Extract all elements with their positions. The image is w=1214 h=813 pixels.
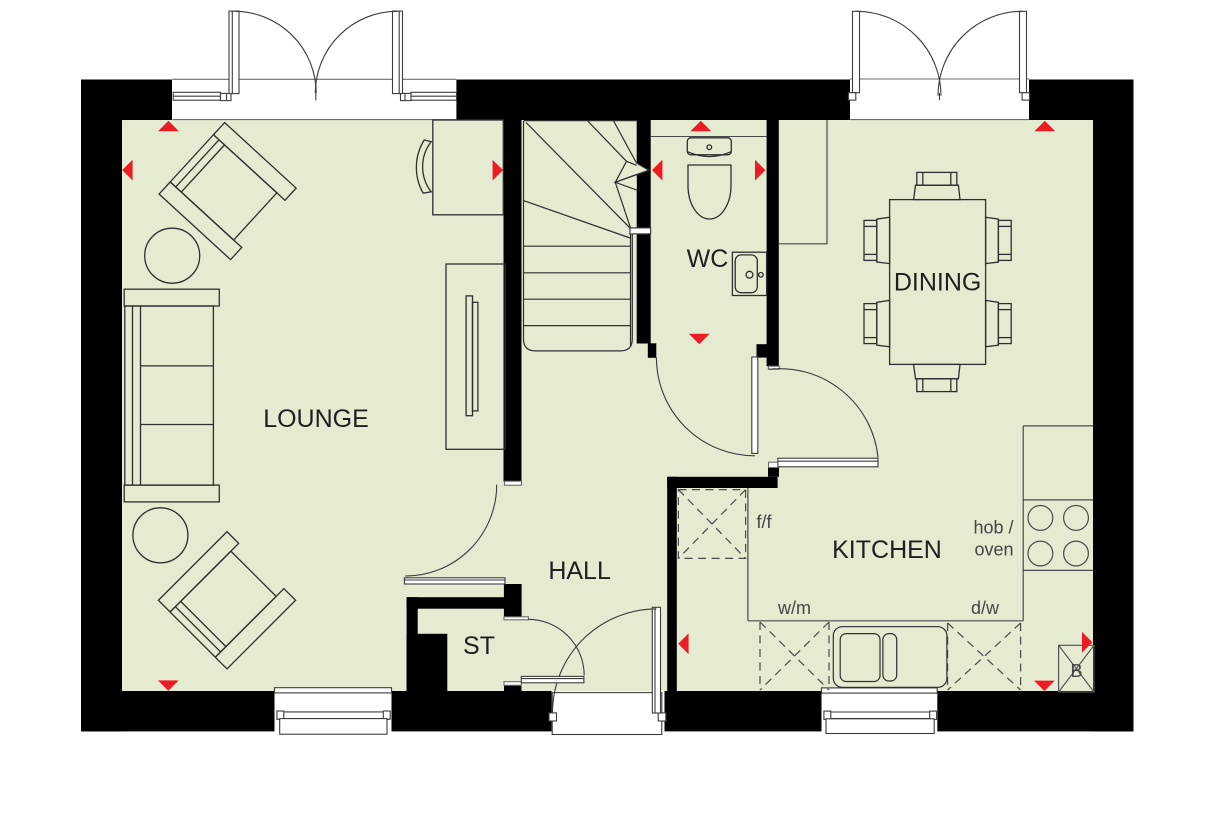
svg-text:hob /: hob / xyxy=(973,518,1013,538)
svg-text:WC: WC xyxy=(687,245,729,273)
svg-text:HALL: HALL xyxy=(548,557,611,585)
svg-text:ST: ST xyxy=(463,632,495,660)
svg-text:oven: oven xyxy=(974,540,1013,560)
svg-text:LOUNGE: LOUNGE xyxy=(263,405,369,433)
svg-text:B: B xyxy=(1070,661,1082,681)
svg-text:DINING: DINING xyxy=(894,268,982,296)
svg-text:w/m: w/m xyxy=(777,598,811,618)
svg-text:KITCHEN: KITCHEN xyxy=(832,536,942,564)
svg-text:f/f: f/f xyxy=(757,512,773,532)
svg-text:d/w: d/w xyxy=(971,598,1000,618)
